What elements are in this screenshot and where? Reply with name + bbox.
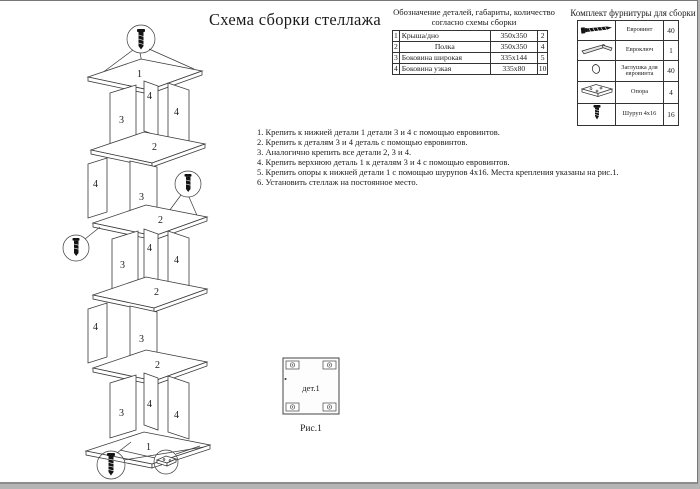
instruction-step: 3. Аналогично крепить все детали 2, 3 и … (257, 147, 617, 157)
part-name: Крыша/дно (399, 30, 490, 41)
hardware-qty: 1 (664, 41, 679, 61)
part-name: Полка (399, 41, 490, 52)
part-label: 2 (158, 215, 163, 226)
part-label: 3 (139, 192, 144, 203)
part-label: 2 (155, 360, 160, 371)
part-size: 335x80 (490, 63, 537, 74)
table-row: 3 Боковина широкая 335x144 5 (393, 52, 548, 63)
instruction-step: 2. Крепить к деталям 3 и 4 деталь с помо… (257, 137, 617, 147)
euro-screw-icon (579, 21, 615, 36)
panel-bottom: 1 (86, 432, 210, 468)
euro-screw-icon (73, 238, 80, 256)
table-row: Заглушка для евровинта 40 (578, 61, 679, 82)
hardware-table: Евровинт 40 Евроключ 1 (577, 20, 679, 126)
screenshot-stage: 1 4 3 4 2 4 3 (0, 0, 700, 489)
hardware-qty: 40 (664, 21, 679, 41)
part-label: 4 (147, 243, 152, 254)
part-label: 1 (137, 69, 142, 80)
cap-icon (579, 61, 615, 77)
part-size: 350x350 (490, 41, 537, 52)
part-num: 4 (393, 63, 400, 74)
hardware-qty: 40 (664, 61, 679, 82)
part-num: 1 (393, 30, 400, 41)
shelf-panel: 2 (93, 277, 207, 312)
part-name: Боковина широкая (399, 52, 490, 63)
table-row: Шуруп 4x16 16 (578, 104, 679, 126)
table-row: 4 Боковина узкая 335x80 10 (393, 63, 548, 74)
part-qty: 10 (537, 63, 548, 74)
parts-table-block: Обозначение деталей, габариты, количеств… (384, 8, 564, 75)
figure-caption: Рис.1 (282, 424, 340, 434)
part-label: 1 (146, 442, 151, 453)
edge-mark (285, 378, 287, 380)
part-label: 3 (119, 408, 124, 419)
part-label: 3 (120, 260, 125, 271)
part-qty: 4 (537, 41, 548, 52)
hex-key-icon (579, 41, 615, 56)
assembly-diagram: 1 4 3 4 2 4 3 (0, 1, 240, 489)
hardware-table-title: Комплект фурнитуры для сборки (569, 8, 697, 18)
euro-screw-icon (137, 29, 145, 50)
hardware-name: Евроключ (616, 41, 664, 61)
support-foot-icon (579, 82, 615, 99)
hardware-name: Заглушка для евровинта (616, 61, 664, 82)
side-panels-level-5: 4 3 4 (110, 373, 189, 439)
detail-1-diagram: дет.1 (282, 357, 340, 419)
table-row: 1 Крыша/дно 350x350 2 (393, 30, 548, 41)
part-label: 4 (147, 91, 152, 102)
part-num: 2 (393, 41, 400, 52)
instruction-step: 4. Крепить верхнюю деталь 1 к деталям 3 … (257, 157, 617, 167)
assembly-instructions: 1. Крепить к нижней детали 1 детали 3 и … (257, 127, 617, 188)
instruction-step: 6. Установить стеллаж на постоянное мест… (257, 177, 617, 187)
part-size: 335x144 (490, 52, 537, 63)
instruction-step: 5. Крепить опоры к нижней детали 1 с пом… (257, 167, 617, 177)
figure-1: дет.1 (282, 357, 340, 424)
hardware-qty: 16 (664, 104, 679, 126)
part-label: 4 (174, 410, 179, 421)
part-name: Боковина узкая (399, 63, 490, 74)
part-label: 4 (93, 179, 98, 190)
part-label: 4 (174, 255, 179, 266)
document-page: 1 4 3 4 2 4 3 (0, 0, 698, 484)
euro-screw-icon (185, 174, 192, 192)
part-qty: 5 (537, 52, 548, 63)
part-size: 350x350 (490, 30, 537, 41)
hardware-name: Шуруп 4x16 (616, 104, 664, 126)
part-label: 4 (147, 399, 152, 410)
table-row: Евровинт 40 (578, 21, 679, 41)
part-label: 2 (152, 142, 157, 153)
part-label: 4 (174, 107, 179, 118)
euro-screw-callout (63, 227, 100, 261)
part-num: 3 (393, 52, 400, 63)
instruction-step: 1. Крепить к нижней детали 1 детали 3 и … (257, 127, 617, 137)
hardware-qty: 4 (664, 82, 679, 104)
hardware-name: Опора (616, 82, 664, 104)
parts-table-title: Обозначение деталей, габариты, количеств… (384, 8, 564, 28)
part-label: 2 (154, 287, 159, 298)
wood-screw-icon (579, 104, 615, 121)
hardware-name: Евровинт (616, 21, 664, 41)
part-label: 4 (93, 322, 98, 333)
detail-label: дет.1 (302, 383, 320, 393)
table-row: 2 Полка 350x350 4 (393, 41, 548, 52)
table-row: Евроключ 1 (578, 41, 679, 61)
hardware-table-block: Комплект фурнитуры для сборки (569, 8, 697, 126)
part-qty: 2 (537, 30, 548, 41)
part-label: 3 (139, 334, 144, 345)
table-row: Опора 4 (578, 82, 679, 104)
parts-table: 1 Крыша/дно 350x350 2 2 Полка 350x350 4 … (392, 30, 548, 75)
part-label: 3 (119, 115, 124, 126)
parts-table-title-line2: согласно схемы сборки (384, 18, 564, 28)
